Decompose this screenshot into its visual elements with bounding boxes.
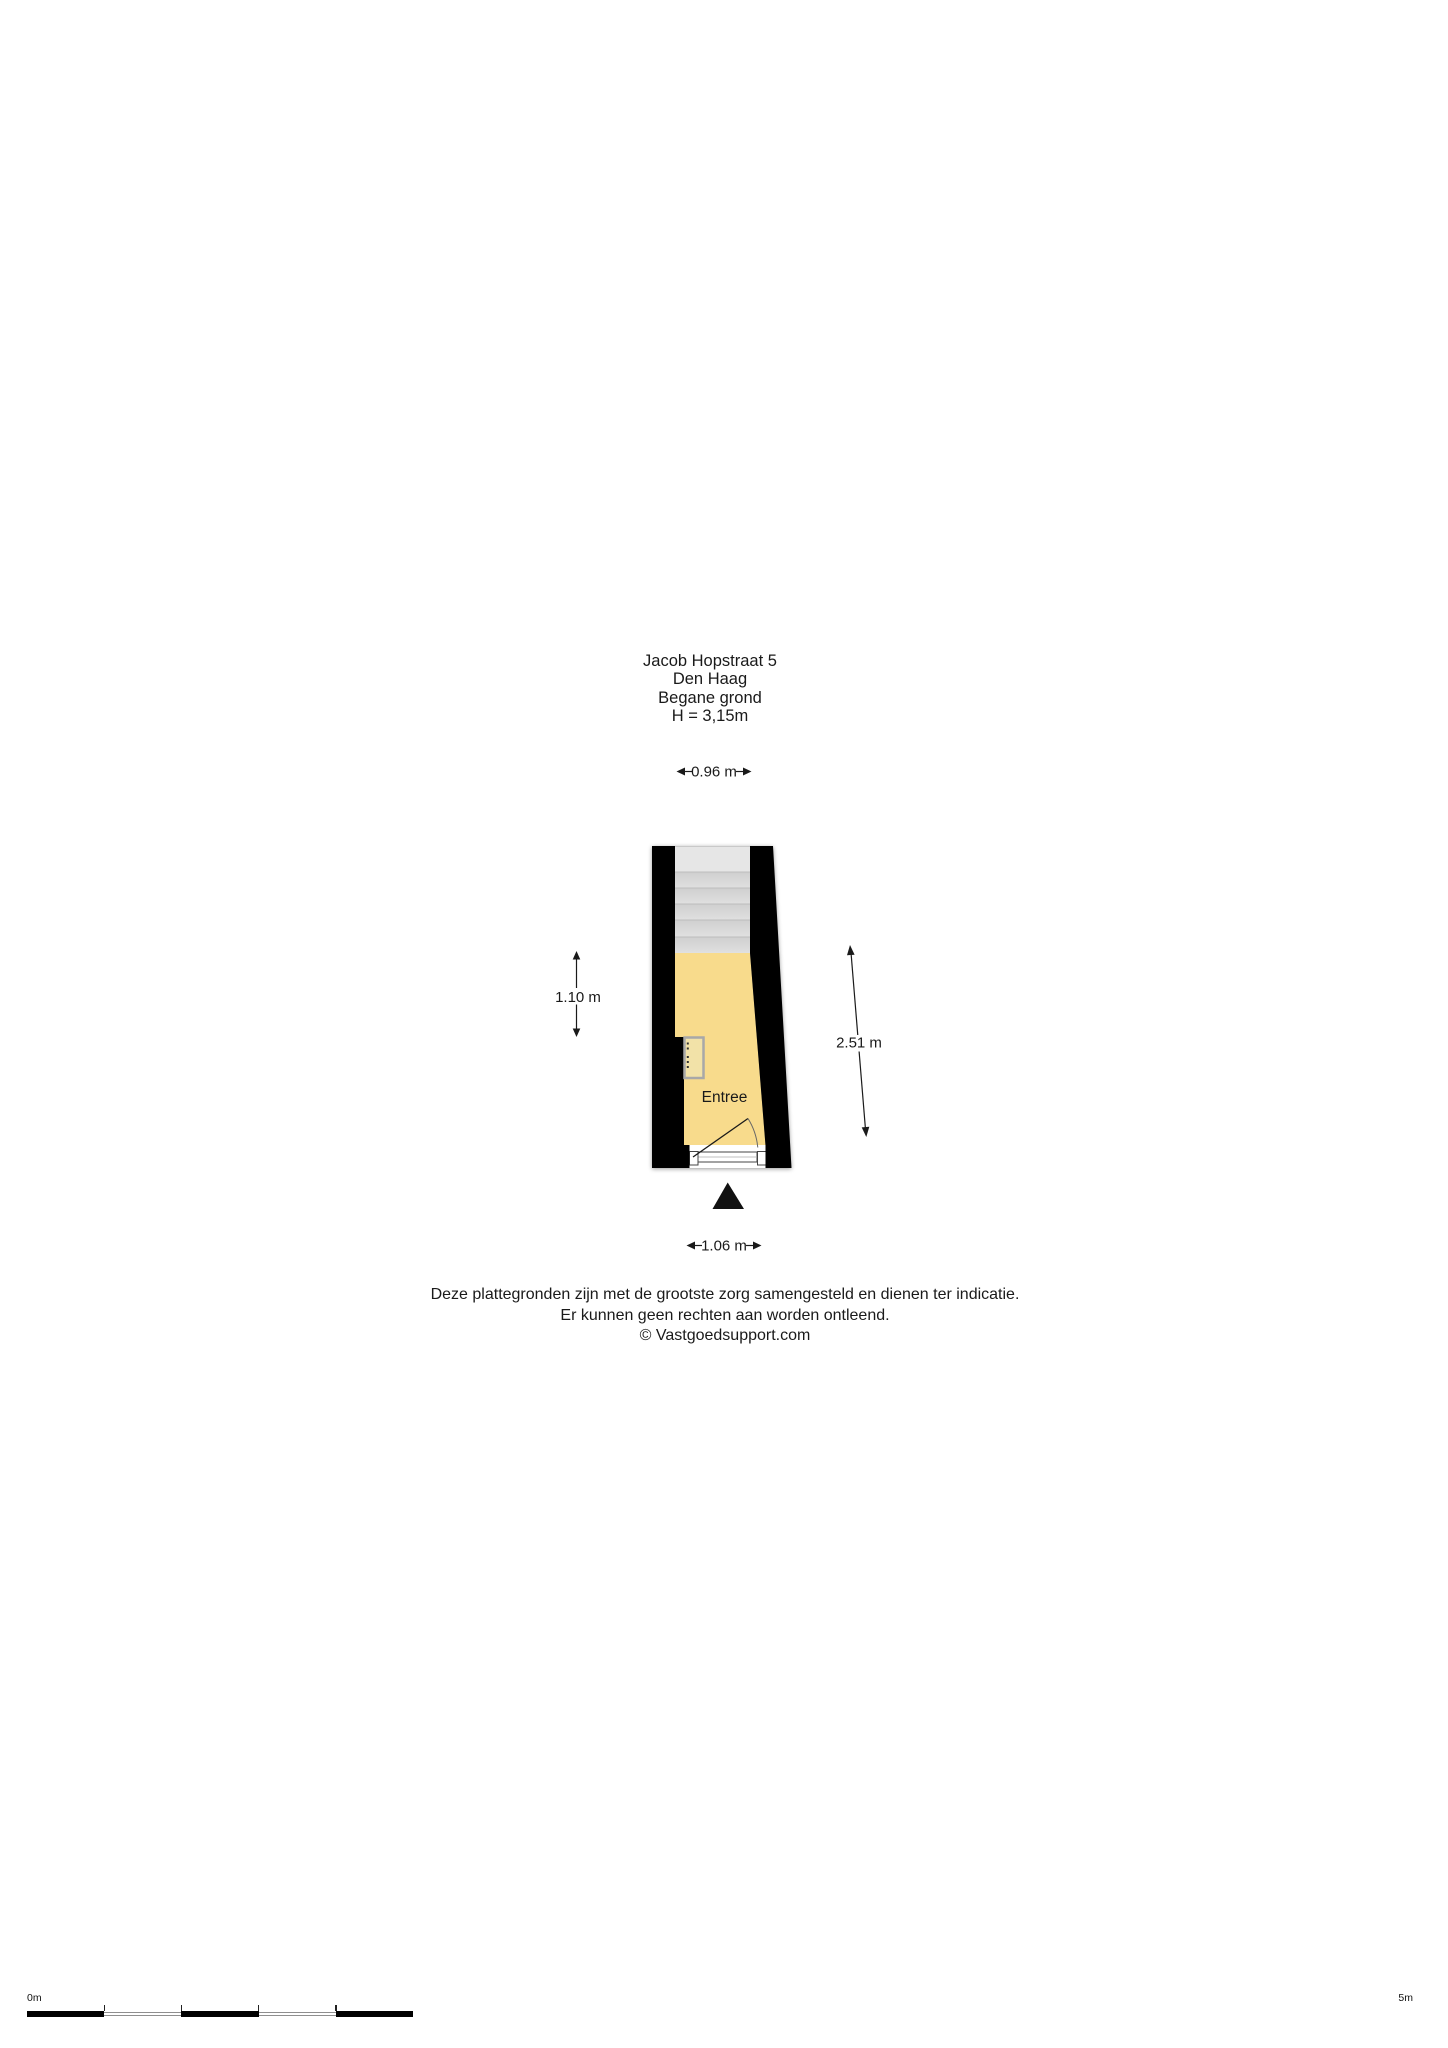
scale-segment <box>259 2012 336 2016</box>
scale-tick <box>181 2005 183 2011</box>
entrance-direction-marker <box>713 1183 745 1210</box>
door-post-right <box>758 1152 767 1166</box>
arrow-left-icon <box>677 768 686 776</box>
arrow-right-icon <box>743 768 752 776</box>
scale-segment <box>336 2011 413 2017</box>
door-post-left <box>690 1152 699 1166</box>
dimension-left-label: 1.10 m <box>555 989 601 1006</box>
dimension-bottom: 1.06 m <box>687 1238 762 1255</box>
stair-step <box>675 888 750 904</box>
staircase <box>675 846 750 953</box>
title-block: Jacob Hopstraat 5 Den Haag Begane grond … <box>510 652 910 726</box>
scale-bar-start-label: 0m <box>27 1992 42 2004</box>
scale-segment <box>181 2011 258 2017</box>
building <box>652 846 792 1168</box>
disclaimer-line: Deze plattegronden zijn met de grootste … <box>425 1285 1025 1306</box>
disclaimer-line: Er kunnen geen rechten aan worden ontlee… <box>425 1306 1025 1327</box>
scale-tick <box>335 2005 337 2011</box>
page: Jacob Hopstraat 5 Den Haag Begane grond … <box>0 0 1448 2048</box>
title-line-floor: Begane grond <box>510 689 910 707</box>
dimension-top-label: 0.96 m <box>691 764 737 781</box>
scale-bar <box>27 2011 413 2017</box>
title-line-height: H = 3,15m <box>510 707 910 725</box>
floor-plan: Entree 0.96 m 1.10 m 2.51 m <box>540 750 900 1260</box>
scale-tick <box>104 2005 106 2011</box>
dimension-left: 1.10 m <box>551 951 603 1037</box>
dimension-right-label: 2.51 m <box>836 1035 882 1052</box>
dimension-top: 0.96 m <box>677 764 752 781</box>
title-line-address: Jacob Hopstraat 5 <box>510 652 910 670</box>
wall-fixture <box>685 1038 704 1079</box>
scale-bar-end-label: 5m <box>1002 1992 1413 2004</box>
arrow-up-icon <box>847 945 855 955</box>
scale-segment <box>27 2011 104 2017</box>
stair-step <box>675 872 750 888</box>
stair-step <box>675 937 750 953</box>
arrow-up-icon <box>573 951 581 960</box>
dimension-right: 2.51 m <box>833 945 886 1137</box>
title-line-city: Den Haag <box>510 670 910 688</box>
stair-step <box>675 904 750 920</box>
room-label: Entree <box>702 1089 748 1106</box>
arrow-right-icon <box>753 1242 762 1250</box>
arrow-left-icon <box>687 1242 696 1250</box>
stair-step <box>675 920 750 937</box>
disclaimer: Deze plattegronden zijn met de grootste … <box>425 1285 1025 1347</box>
disclaimer-line: © Vastgoedsupport.com <box>425 1326 1025 1347</box>
scale-segment <box>104 2012 181 2016</box>
arrow-down-icon <box>573 1029 581 1038</box>
arrow-down-icon <box>862 1127 870 1137</box>
stair-landing <box>675 846 750 872</box>
dimension-bottom-label: 1.06 m <box>701 1238 747 1255</box>
scale-tick <box>258 2005 260 2011</box>
